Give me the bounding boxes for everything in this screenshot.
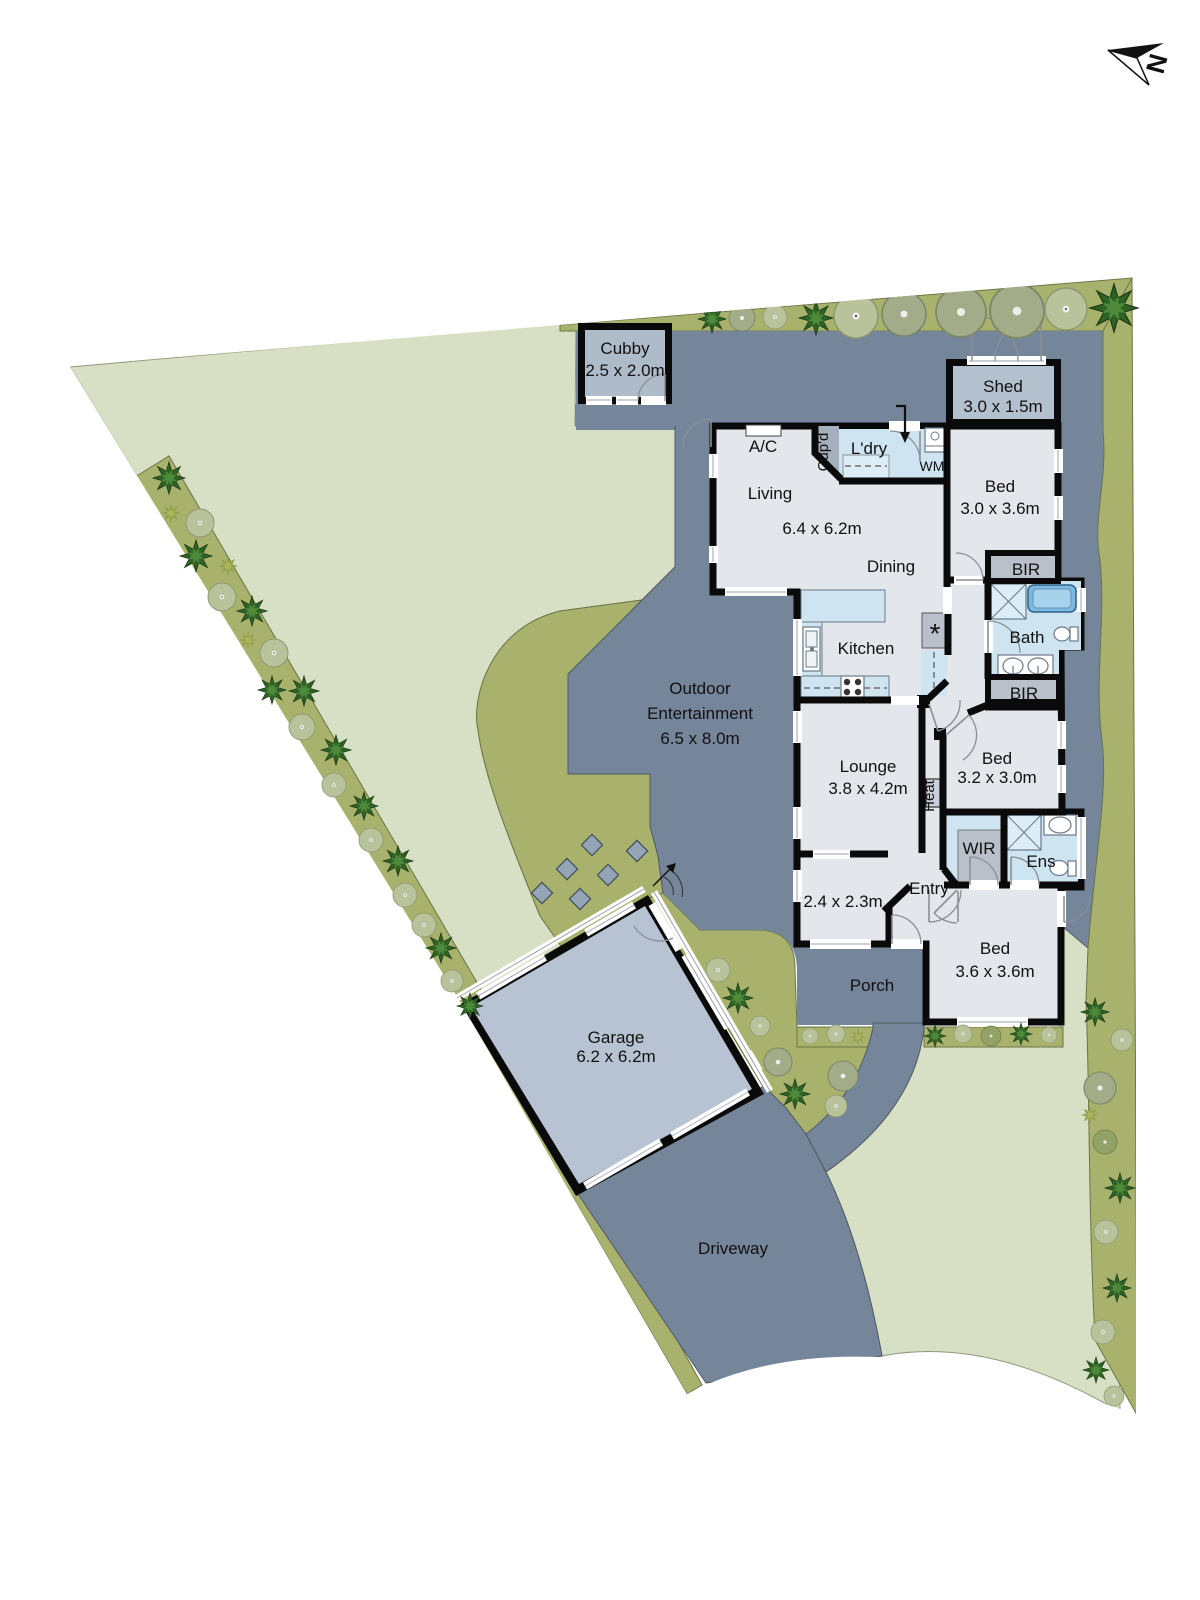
svg-text:BIR: BIR — [1012, 560, 1040, 579]
svg-text:Dining: Dining — [867, 557, 915, 576]
svg-text:Bed: Bed — [985, 477, 1015, 496]
svg-text:2.5 x 2.0m: 2.5 x 2.0m — [585, 361, 664, 380]
svg-text:Entertainment: Entertainment — [647, 704, 753, 723]
svg-text:BIR: BIR — [1010, 684, 1038, 703]
svg-text:2.4 x 2.3m: 2.4 x 2.3m — [803, 892, 882, 911]
svg-text:Driveway: Driveway — [698, 1239, 768, 1258]
svg-text:Bath: Bath — [1010, 628, 1045, 647]
svg-text:Lounge: Lounge — [840, 757, 897, 776]
svg-text:3.8 x 4.2m: 3.8 x 4.2m — [828, 779, 907, 798]
svg-text:L'dry: L'dry — [851, 439, 888, 458]
svg-text:Bed: Bed — [980, 939, 1010, 958]
svg-text:Living: Living — [748, 484, 792, 503]
svg-text:*: * — [930, 618, 941, 649]
svg-text:6.4 x 6.2m: 6.4 x 6.2m — [782, 519, 861, 538]
svg-text:Heat: Heat — [921, 779, 938, 812]
svg-text:3.2 x 3.0m: 3.2 x 3.0m — [957, 768, 1036, 787]
svg-text:3.6 x 3.6m: 3.6 x 3.6m — [955, 962, 1034, 981]
svg-text:Porch: Porch — [850, 976, 894, 995]
svg-text:Bed: Bed — [982, 749, 1012, 768]
svg-text:3.0 x 3.6m: 3.0 x 3.6m — [960, 499, 1039, 518]
svg-text:WIR: WIR — [962, 839, 995, 858]
svg-text:Cubby: Cubby — [600, 339, 650, 358]
svg-text:Shed: Shed — [983, 377, 1023, 396]
svg-text:Entry: Entry — [909, 879, 949, 898]
svg-text:3.0 x 1.5m: 3.0 x 1.5m — [963, 397, 1042, 416]
svg-text:Outdoor: Outdoor — [669, 679, 731, 698]
svg-text:Cup'd: Cup'd — [815, 433, 832, 472]
svg-text:Kitchen: Kitchen — [838, 639, 895, 658]
svg-text:A/C: A/C — [749, 437, 777, 456]
svg-text:6.5 x 8.0m: 6.5 x 8.0m — [660, 729, 739, 748]
svg-text:Ens: Ens — [1026, 852, 1055, 871]
svg-text:Garage: Garage — [588, 1028, 645, 1047]
svg-text:WM: WM — [920, 458, 945, 474]
svg-text:6.2 x 6.2m: 6.2 x 6.2m — [576, 1047, 655, 1066]
